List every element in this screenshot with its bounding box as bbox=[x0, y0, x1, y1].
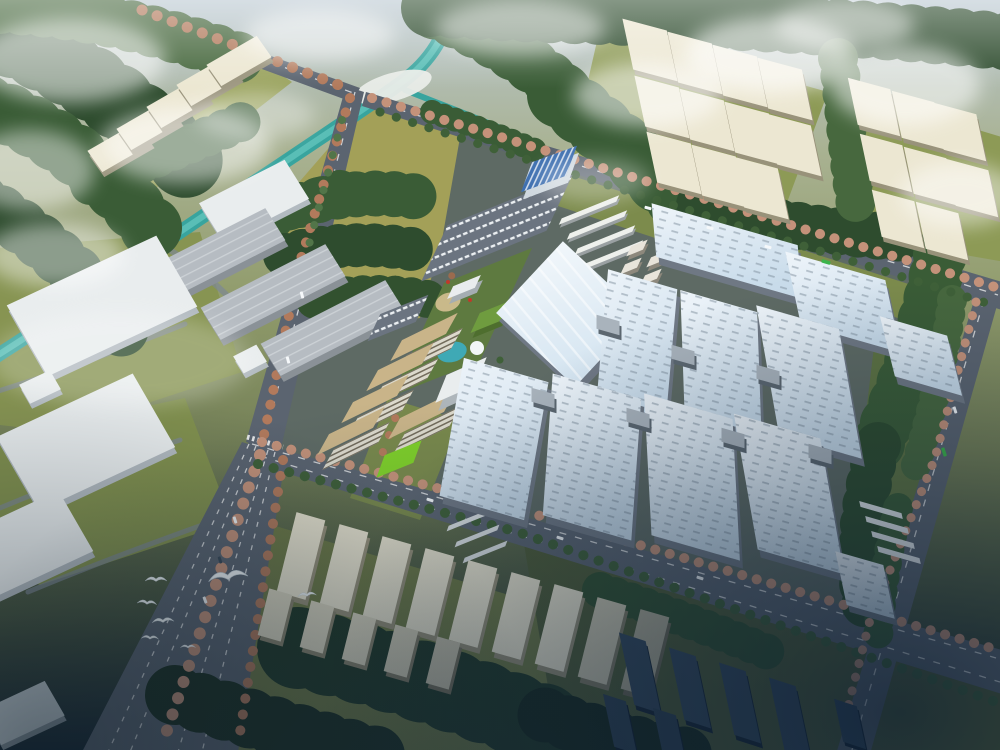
aerial-rendering-stage: Aerial bird's-eye architectural renderin… bbox=[0, 0, 1000, 750]
vignette-bottom-right bbox=[0, 0, 1000, 750]
industrial-park-aerial-rendering bbox=[0, 0, 1000, 750]
